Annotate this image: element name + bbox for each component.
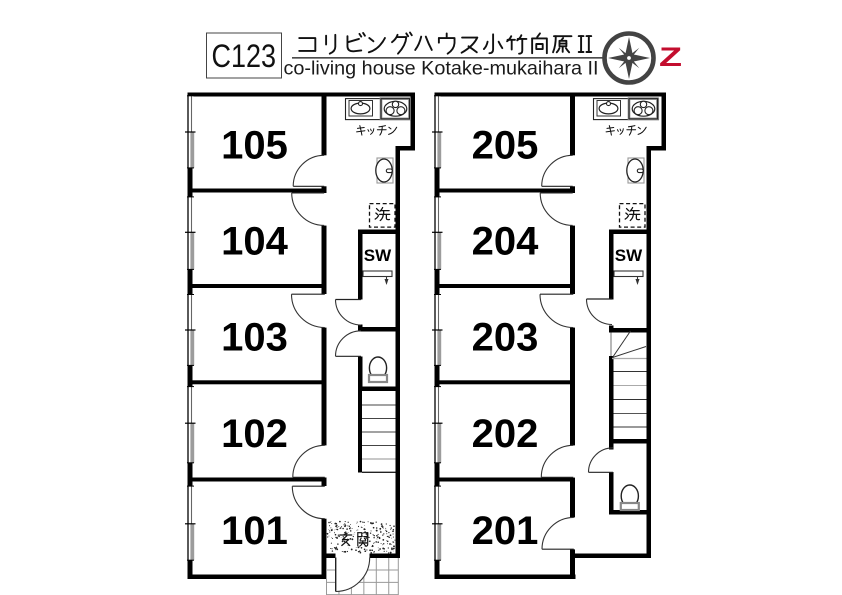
svg-text:105: 105 xyxy=(221,124,288,168)
svg-text:203: 203 xyxy=(472,316,539,360)
svg-text:104: 104 xyxy=(221,220,288,264)
svg-text:102: 102 xyxy=(221,412,288,456)
svg-text:202: 202 xyxy=(472,412,539,456)
svg-text:SW: SW xyxy=(364,246,392,265)
svg-text:SW: SW xyxy=(615,246,643,265)
svg-text:co-living house Kotake-mukaiha: co-living house Kotake-mukaihara II xyxy=(284,58,599,80)
svg-text:201: 201 xyxy=(472,509,539,553)
svg-text:204: 204 xyxy=(472,220,539,264)
svg-text:103: 103 xyxy=(221,316,288,360)
svg-text:101: 101 xyxy=(221,509,288,553)
svg-text:C123: C123 xyxy=(212,38,277,74)
svg-text:Z: Z xyxy=(659,42,682,72)
svg-text:205: 205 xyxy=(472,124,539,168)
